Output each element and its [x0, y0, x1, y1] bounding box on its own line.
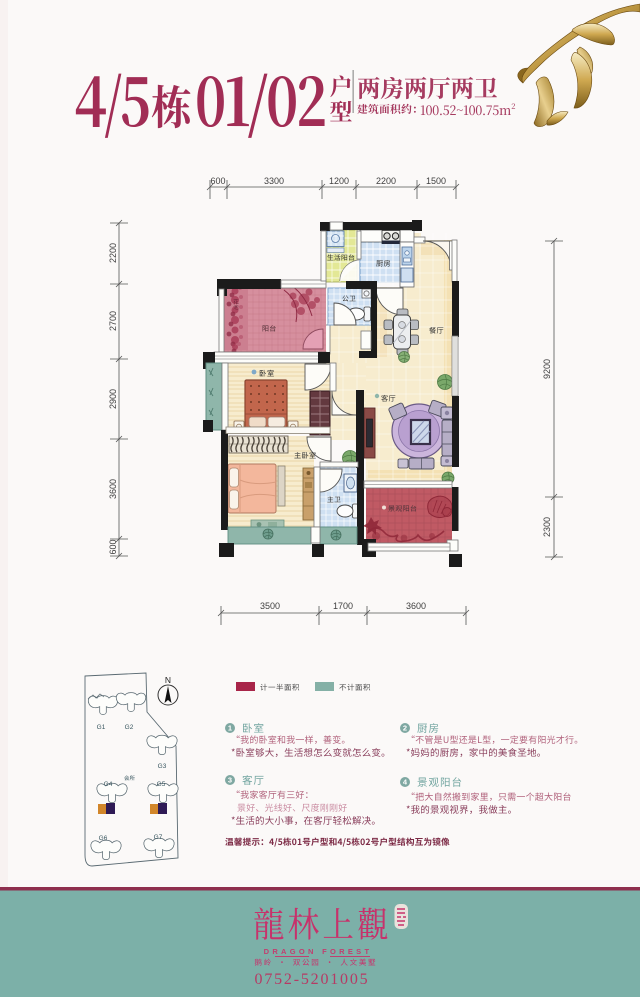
svg-text:2: 2: [403, 724, 407, 733]
svg-text:G7: G7: [154, 834, 163, 841]
svg-text:2900: 2900: [108, 389, 118, 409]
svg-text:1500: 1500: [426, 176, 446, 186]
svg-text:3600: 3600: [406, 601, 426, 611]
svg-text:2300: 2300: [542, 517, 552, 537]
svg-text:3600: 3600: [108, 479, 118, 499]
svg-text:G3: G3: [158, 763, 167, 770]
svg-text:9200: 9200: [542, 359, 552, 379]
svg-text:1700: 1700: [333, 601, 353, 611]
svg-text:0752-5201005: 0752-5201005: [255, 971, 370, 988]
svg-text:3500: 3500: [260, 601, 280, 611]
svg-text:G4: G4: [104, 781, 113, 788]
svg-text:3: 3: [228, 776, 232, 785]
svg-text:1: 1: [228, 724, 232, 733]
svg-text:G2: G2: [125, 724, 134, 731]
svg-text:2200: 2200: [376, 176, 396, 186]
svg-text:G1: G1: [97, 724, 106, 731]
svg-text:G6: G6: [99, 835, 108, 842]
svg-text:2700: 2700: [108, 311, 118, 331]
svg-text:2200: 2200: [108, 243, 118, 263]
svg-text:600: 600: [108, 539, 118, 554]
svg-text:1200: 1200: [329, 176, 349, 186]
svg-text:DRAGON FOREST: DRAGON FOREST: [264, 947, 373, 956]
svg-text:3300: 3300: [264, 176, 284, 186]
svg-text:N: N: [165, 675, 171, 685]
svg-text:600: 600: [210, 176, 225, 186]
svg-text:G5: G5: [157, 781, 166, 788]
